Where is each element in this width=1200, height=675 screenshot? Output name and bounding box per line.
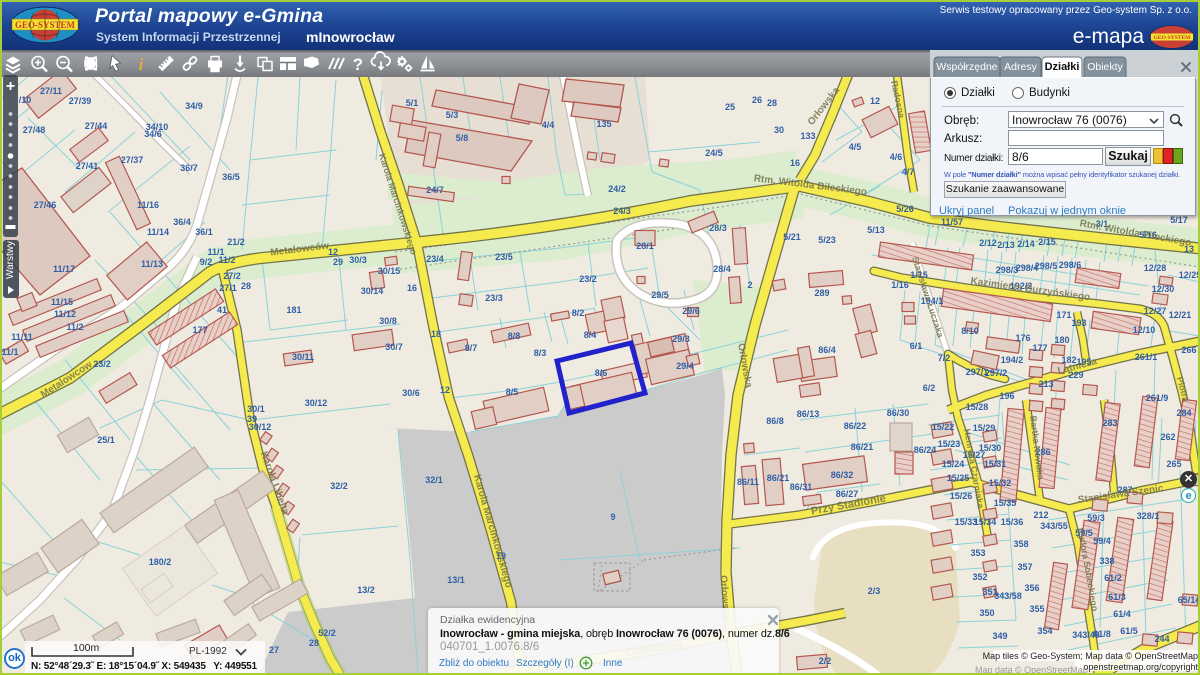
svg-text:11/2: 11/2 [66, 322, 83, 332]
svg-text:86/32: 86/32 [831, 470, 854, 480]
svg-text:24/3: 24/3 [613, 206, 631, 216]
svg-text:15/25: 15/25 [947, 473, 970, 483]
svg-text:5/1: 5/1 [406, 98, 419, 108]
svg-text:30/12: 30/12 [305, 398, 328, 408]
svg-text:41: 41 [217, 305, 227, 315]
svg-text:28/1: 28/1 [636, 241, 654, 251]
svg-text:181: 181 [286, 305, 301, 315]
svg-text:15/28: 15/28 [966, 402, 989, 412]
svg-text:266: 266 [1181, 345, 1196, 355]
svg-text:4/4: 4/4 [542, 120, 555, 130]
svg-text:12/25: 12/25 [1179, 270, 1200, 280]
svg-text:61/3: 61/3 [1108, 592, 1126, 602]
svg-text:27/46: 27/46 [34, 200, 57, 210]
svg-text:21/2: 21/2 [227, 237, 245, 247]
svg-text:12: 12 [870, 96, 880, 106]
svg-text:61/5: 61/5 [1120, 626, 1138, 636]
svg-text:23/3: 23/3 [485, 293, 503, 303]
svg-text:180/2: 180/2 [149, 557, 172, 567]
svg-text:2/13: 2/13 [997, 240, 1015, 250]
svg-text:8/8: 8/8 [508, 331, 521, 341]
svg-text:30/11: 30/11 [292, 352, 314, 362]
svg-text:23/2: 23/2 [579, 274, 597, 284]
svg-text:86/22: 86/22 [844, 421, 867, 431]
svg-text:30/15: 30/15 [378, 266, 401, 276]
svg-text:5/13: 5/13 [867, 225, 885, 235]
svg-text:27/39: 27/39 [69, 96, 92, 106]
svg-text:27/2: 27/2 [223, 271, 241, 281]
svg-text:13/1: 13/1 [447, 575, 465, 585]
svg-text:29/3: 29/3 [672, 334, 690, 344]
svg-text:12/30: 12/30 [1152, 284, 1175, 294]
svg-text:289: 289 [814, 288, 829, 298]
svg-text:+: + [6, 78, 15, 95]
svg-text:343/55: 343/55 [1040, 521, 1068, 531]
svg-text:86/21: 86/21 [851, 442, 874, 452]
svg-text:180: 180 [1054, 335, 1069, 345]
svg-text:338: 338 [1099, 556, 1114, 566]
svg-text:193: 193 [1071, 318, 1086, 328]
svg-text:135: 135 [596, 119, 611, 129]
svg-text:11/14: 11/14 [147, 227, 169, 237]
svg-text:8/2: 8/2 [572, 308, 585, 318]
svg-text:32/1: 32/1 [425, 475, 443, 485]
svg-text:284: 284 [1176, 408, 1191, 418]
svg-text:298/6: 298/6 [1059, 260, 1082, 270]
svg-text:177: 177 [192, 325, 207, 335]
svg-text:28: 28 [309, 638, 319, 648]
svg-text:265: 265 [1166, 459, 1181, 469]
svg-text:Adresy: Adresy [1004, 61, 1037, 73]
svg-text:86/13: 86/13 [797, 409, 820, 419]
svg-text:23/2: 23/2 [93, 359, 111, 369]
svg-text:23/4: 23/4 [426, 254, 444, 264]
svg-text:8/4: 8/4 [584, 330, 597, 340]
svg-text:openstreetmap.org/copyright: openstreetmap.org/copyright [1083, 662, 1198, 672]
svg-text:354: 354 [1037, 626, 1052, 636]
svg-text:30: 30 [774, 125, 784, 135]
svg-text:59/3: 59/3 [1087, 513, 1105, 523]
svg-text:16: 16 [407, 283, 417, 293]
svg-text:30/8: 30/8 [379, 316, 397, 326]
svg-text:4/6: 4/6 [890, 152, 903, 162]
svg-text:15/24: 15/24 [942, 459, 965, 469]
svg-text:13/2: 13/2 [357, 585, 375, 595]
svg-text:29: 29 [333, 257, 343, 267]
svg-text:32/2: 32/2 [330, 481, 348, 491]
svg-text:30/6: 30/6 [402, 388, 420, 398]
svg-text:8/5: 8/5 [506, 387, 519, 397]
svg-text:11/2: 11/2 [218, 255, 235, 265]
svg-text:28/3: 28/3 [709, 223, 727, 233]
svg-text:/10: /10 [19, 95, 32, 105]
svg-text:Obiekty: Obiekty [1087, 61, 1123, 73]
svg-text:12/21: 12/21 [1169, 310, 1192, 320]
svg-text:15/31: 15/31 [984, 459, 1007, 469]
svg-text:34/6: 34/6 [144, 129, 162, 139]
svg-text:328/1: 328/1 [1137, 511, 1160, 521]
svg-text:4/7: 4/7 [902, 167, 915, 177]
svg-text:11/13: 11/13 [141, 259, 163, 269]
svg-text:9: 9 [610, 512, 615, 522]
svg-text:176: 176 [1015, 333, 1030, 343]
svg-text:2/2: 2/2 [819, 656, 832, 666]
svg-text:2/14: 2/14 [1017, 239, 1035, 249]
svg-text:6/2: 6/2 [923, 383, 936, 393]
svg-text:Map data © OpenStreetMap: Map data © OpenStreetMap [975, 665, 1088, 675]
svg-text:5/17: 5/17 [1170, 215, 1188, 225]
svg-text:261/9: 261/9 [1146, 393, 1169, 403]
svg-text:36/7: 36/7 [180, 163, 198, 173]
svg-text:28: 28 [241, 281, 251, 291]
svg-text:15/32: 15/32 [989, 478, 1012, 488]
svg-text:?: ? [353, 55, 363, 74]
svg-text:15/26: 15/26 [950, 491, 973, 501]
svg-text:61/8: 61/8 [1093, 629, 1111, 639]
svg-text:86/30: 86/30 [887, 408, 910, 418]
svg-text:28/4: 28/4 [713, 264, 731, 274]
svg-text:244: 244 [1154, 634, 1169, 644]
svg-text:2: 2 [747, 280, 752, 290]
svg-text:261/1: 261/1 [1135, 352, 1158, 362]
svg-text:352: 352 [972, 572, 987, 582]
svg-text:86/4: 86/4 [818, 345, 836, 355]
svg-text:24/2: 24/2 [608, 184, 626, 194]
svg-text:1/16: 1/16 [891, 280, 909, 290]
svg-text:18: 18 [431, 329, 441, 339]
svg-text:5/3: 5/3 [446, 110, 459, 120]
svg-text:11/15: 11/15 [51, 297, 73, 307]
svg-text:30/14: 30/14 [361, 286, 384, 296]
svg-text:28: 28 [767, 98, 777, 108]
svg-text:2/12: 2/12 [979, 238, 997, 248]
svg-text:25: 25 [725, 102, 735, 112]
svg-text:23/5: 23/5 [495, 252, 513, 262]
svg-text:15/36: 15/36 [1001, 517, 1024, 527]
svg-text:65/14: 65/14 [1178, 595, 1200, 605]
svg-text:343/58: 343/58 [994, 591, 1022, 601]
svg-text:4/5: 4/5 [849, 142, 862, 152]
svg-text:GEO-SYSTEM: GEO-SYSTEM [1154, 35, 1191, 41]
svg-text:27/44: 27/44 [85, 121, 108, 131]
svg-text:133: 133 [800, 131, 815, 141]
svg-text:350: 350 [979, 608, 994, 618]
svg-text:11/57: 11/57 [941, 217, 963, 227]
svg-text:16: 16 [790, 158, 800, 168]
svg-text:196: 196 [999, 391, 1014, 401]
svg-text:262: 262 [1160, 432, 1175, 442]
svg-text:30/3: 30/3 [349, 255, 367, 265]
svg-text:29/4: 29/4 [676, 361, 694, 371]
svg-text:36/1: 36/1 [195, 227, 213, 237]
svg-text:212: 212 [1033, 510, 1048, 520]
svg-text:86/21: 86/21 [767, 473, 790, 483]
svg-text:12/10: 12/10 [1133, 325, 1156, 335]
svg-text:283: 283 [1102, 418, 1117, 428]
svg-text:61/2: 61/2 [1104, 573, 1122, 583]
svg-text:27/41: 27/41 [76, 161, 99, 171]
svg-text:8/6: 8/6 [595, 368, 608, 378]
svg-text:27/48: 27/48 [23, 125, 46, 135]
svg-text:15/29: 15/29 [973, 423, 996, 433]
svg-text:358: 358 [1013, 539, 1028, 549]
svg-text:27: 27 [269, 645, 279, 655]
svg-text:171: 171 [1056, 310, 1071, 320]
svg-text:86/24: 86/24 [914, 445, 937, 455]
svg-text:11/1: 11/1 [1, 347, 18, 357]
svg-text:30/12: 30/12 [249, 422, 272, 432]
svg-text:353: 353 [970, 548, 985, 558]
svg-text:86/31: 86/31 [790, 482, 813, 492]
svg-text:15/23: 15/23 [938, 439, 961, 449]
svg-text:52/2: 52/2 [318, 628, 336, 638]
svg-text:24/5: 24/5 [705, 148, 723, 158]
svg-text:298/5: 298/5 [1035, 261, 1058, 271]
svg-text:27/1: 27/1 [219, 283, 237, 293]
svg-text:29/5: 29/5 [651, 290, 669, 300]
svg-text:11/11: 11/11 [11, 332, 33, 342]
svg-text:194/2: 194/2 [1001, 355, 1024, 365]
svg-text:213: 213 [1038, 379, 1053, 389]
svg-text:i: i [139, 55, 144, 74]
svg-text:15/34: 15/34 [974, 517, 997, 527]
svg-text:Działki: Działki [1045, 61, 1080, 73]
svg-text:8/10: 8/10 [961, 326, 979, 336]
svg-text:24/7: 24/7 [426, 185, 444, 195]
svg-text:26: 26 [752, 95, 762, 105]
svg-text:5/23: 5/23 [818, 235, 836, 245]
svg-text:5/8: 5/8 [456, 133, 469, 143]
svg-text:297/2: 297/2 [985, 368, 1008, 378]
svg-text:2/3: 2/3 [868, 586, 881, 596]
svg-text:34/9: 34/9 [185, 101, 203, 111]
svg-text:30/1: 30/1 [247, 404, 265, 414]
svg-text:9/2: 9/2 [200, 257, 213, 267]
svg-text:8/3: 8/3 [534, 348, 547, 358]
svg-text:11/17: 11/17 [53, 264, 75, 274]
svg-text:12: 12 [328, 247, 338, 257]
svg-text:59/4: 59/4 [1093, 536, 1111, 546]
svg-text:5/21: 5/21 [783, 232, 801, 242]
svg-text:177: 177 [1032, 343, 1047, 353]
svg-text:36/4: 36/4 [173, 217, 191, 227]
svg-text:86/11: 86/11 [737, 477, 759, 487]
svg-text:349: 349 [992, 631, 1007, 641]
svg-text:15/22: 15/22 [932, 422, 955, 432]
svg-text:27/37: 27/37 [121, 155, 144, 165]
svg-text:27/11: 27/11 [40, 86, 62, 96]
svg-text:61/4: 61/4 [1113, 609, 1131, 619]
svg-text:355: 355 [1029, 604, 1044, 614]
svg-text:Współrzędne: Współrzędne [936, 61, 997, 73]
svg-text:30/7: 30/7 [385, 342, 403, 352]
svg-text:8/7: 8/7 [465, 343, 478, 353]
svg-text:5/26: 5/26 [896, 204, 914, 214]
svg-text:11/16: 11/16 [137, 200, 159, 210]
svg-text:7/2: 7/2 [938, 353, 951, 363]
svg-text:357: 357 [1017, 562, 1032, 572]
svg-text:29/6: 29/6 [682, 306, 700, 316]
svg-text:11/12: 11/12 [54, 309, 76, 319]
svg-text:356: 356 [1024, 583, 1039, 593]
svg-text:15/30: 15/30 [979, 443, 1002, 453]
svg-text:12/27: 12/27 [1144, 306, 1167, 316]
svg-text:12: 12 [440, 385, 450, 395]
svg-text:6/1: 6/1 [910, 341, 923, 351]
svg-text:Map tiles © Geo-System; Map da: Map tiles © Geo-System; Map data © OpenS… [983, 651, 1198, 661]
svg-text:2/15: 2/15 [1038, 237, 1056, 247]
svg-text:Warstwy: Warstwy [5, 241, 16, 279]
svg-text:36/5: 36/5 [222, 172, 240, 182]
svg-text:12/28: 12/28 [1144, 263, 1167, 273]
svg-text:15/35: 15/35 [994, 498, 1017, 508]
svg-text:25/1: 25/1 [97, 435, 115, 445]
svg-text:86/8: 86/8 [766, 416, 784, 426]
